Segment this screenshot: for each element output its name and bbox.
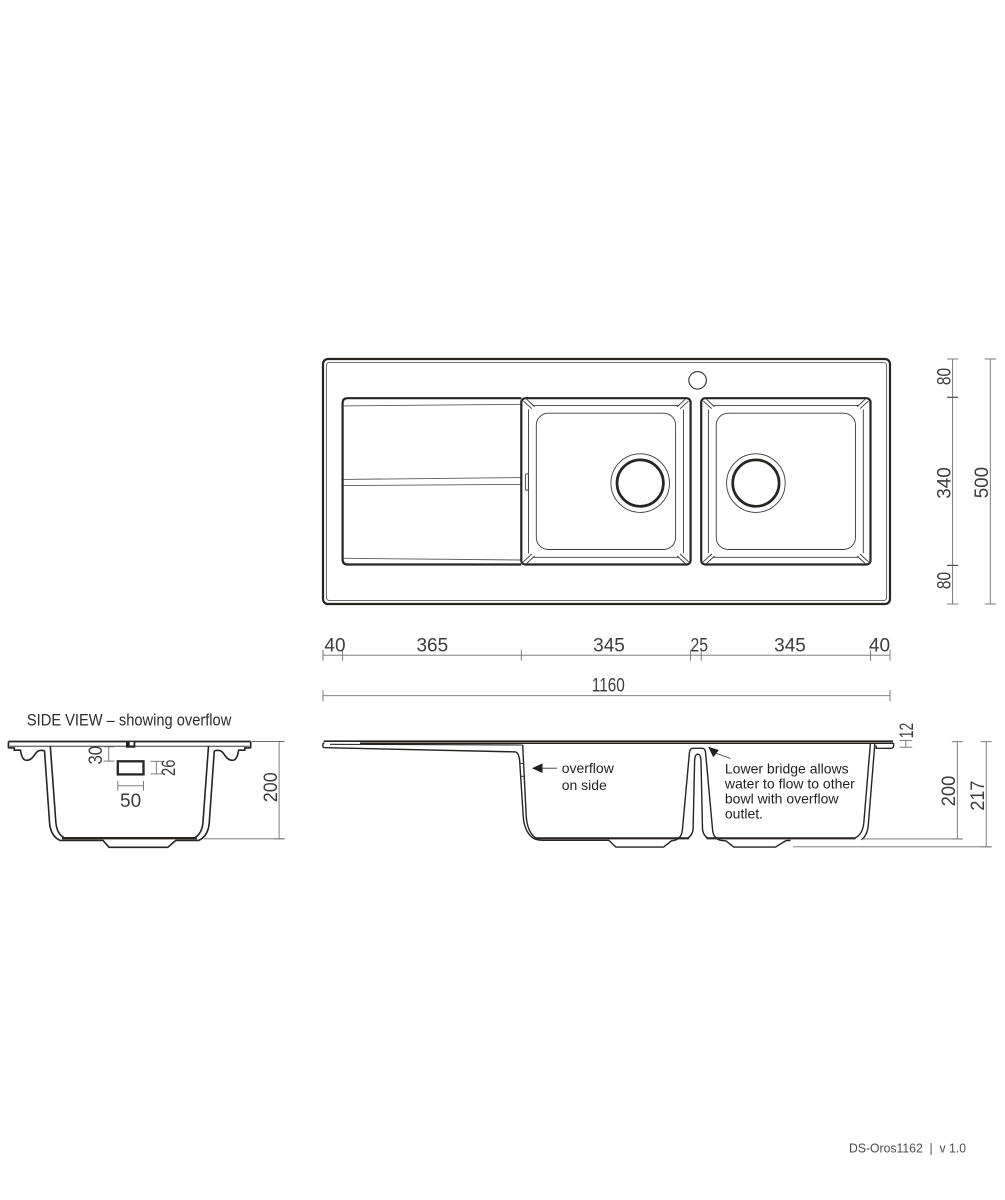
svg-text:Lower bridge allows: Lower bridge allows bbox=[725, 760, 849, 776]
svg-text:water to flow to other: water to flow to other bbox=[724, 775, 855, 791]
svg-text:25: 25 bbox=[691, 635, 709, 656]
svg-text:365: 365 bbox=[416, 635, 448, 656]
svg-text:217: 217 bbox=[968, 781, 989, 811]
svg-text:26: 26 bbox=[159, 760, 180, 776]
svg-text:345: 345 bbox=[774, 635, 806, 656]
svg-text:1160: 1160 bbox=[592, 675, 625, 696]
svg-text:500: 500 bbox=[972, 467, 993, 498]
svg-text:outlet.: outlet. bbox=[725, 806, 763, 822]
svg-text:345: 345 bbox=[593, 635, 625, 656]
svg-text:30: 30 bbox=[86, 746, 107, 765]
svg-text:SIDE VIEW – showing overflow: SIDE VIEW – showing overflow bbox=[27, 712, 232, 730]
svg-text:40: 40 bbox=[324, 635, 345, 656]
svg-text:200: 200 bbox=[261, 772, 282, 802]
svg-text:340: 340 bbox=[934, 467, 955, 499]
svg-text:overflow: overflow bbox=[562, 760, 615, 776]
svg-text:50: 50 bbox=[120, 791, 141, 812]
svg-text:80: 80 bbox=[934, 368, 955, 385]
svg-text:12: 12 bbox=[897, 723, 918, 739]
svg-text:80: 80 bbox=[934, 572, 955, 589]
svg-text:40: 40 bbox=[869, 635, 890, 656]
svg-text:200: 200 bbox=[939, 776, 960, 807]
svg-text:bowl with overflow: bowl with overflow bbox=[725, 791, 839, 807]
svg-text:on side: on side bbox=[562, 777, 607, 793]
svg-text:DS-Oros1162 | v 1.0: DS-Oros1162 | v 1.0 bbox=[849, 1141, 966, 1156]
